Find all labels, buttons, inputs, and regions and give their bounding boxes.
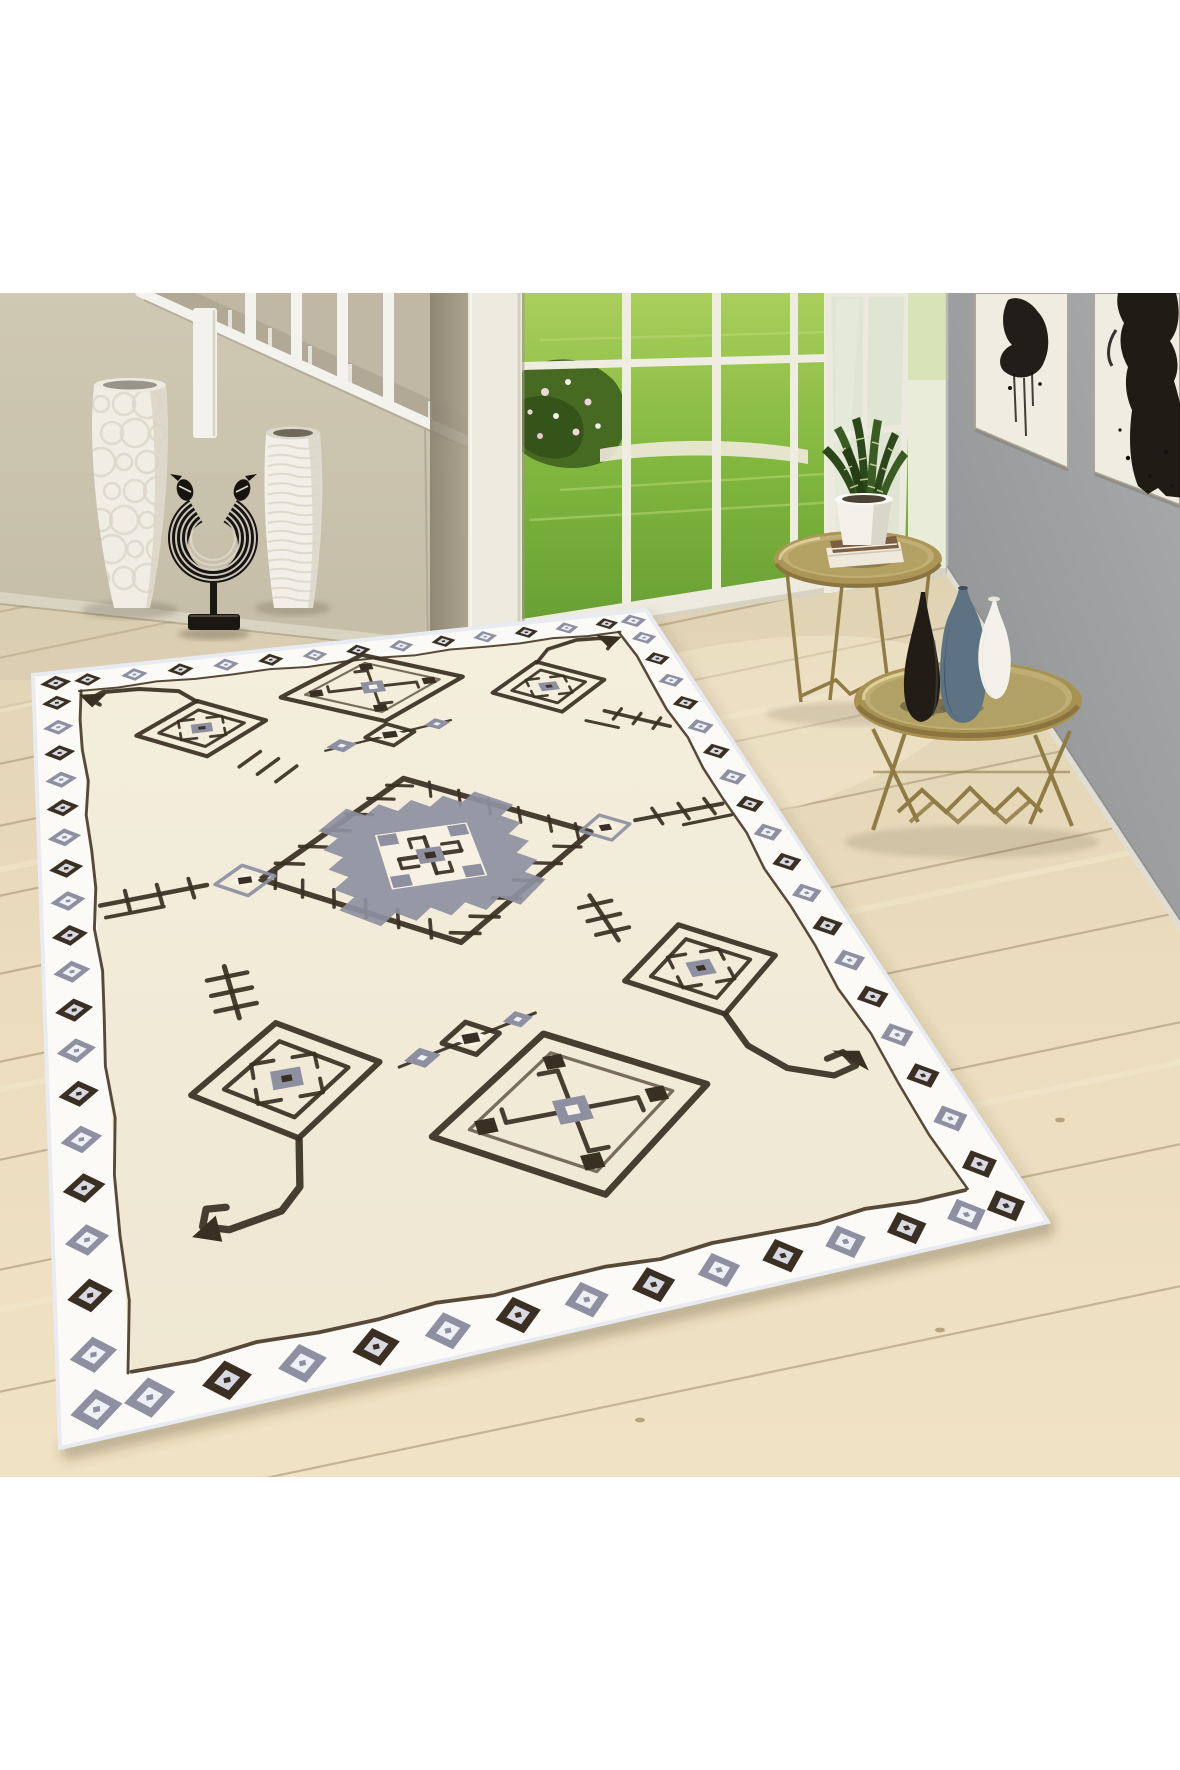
rug-line xyxy=(470,916,499,917)
ribbed-floor-vase xyxy=(264,427,322,609)
baluster xyxy=(383,293,394,404)
rug-line xyxy=(368,798,394,799)
product-photo-page xyxy=(0,0,1180,1770)
mullion xyxy=(712,293,721,589)
ribbed-vase-opening xyxy=(273,429,313,437)
plank-knot xyxy=(1055,1118,1065,1123)
mullion xyxy=(622,293,631,603)
rug-line xyxy=(534,863,562,864)
photo xyxy=(0,0,1180,1770)
rug-line xyxy=(275,872,276,889)
plank-knot xyxy=(635,1418,645,1423)
door-frame-pillar xyxy=(468,293,522,645)
artwork-ink-dress xyxy=(1094,293,1180,507)
plank-knot xyxy=(935,1328,945,1333)
rug-border-diamond-dot xyxy=(54,682,58,684)
table-shadow xyxy=(844,826,1100,858)
rug-line xyxy=(275,863,303,864)
understair-shadow xyxy=(430,293,468,643)
baluster xyxy=(291,293,302,363)
baluster xyxy=(337,293,348,383)
rug-line xyxy=(430,920,432,938)
pot-soil xyxy=(842,495,886,503)
rug-line xyxy=(450,933,479,934)
blue-vase-lip xyxy=(958,586,968,590)
rug-border-diamond-dot xyxy=(55,702,59,704)
white-vase-lip xyxy=(988,597,1000,602)
rug-line xyxy=(554,846,581,847)
baluster xyxy=(245,293,256,342)
mullion xyxy=(790,293,798,576)
pebble-vase-opening xyxy=(103,381,157,390)
sculpture-stem xyxy=(210,583,217,617)
exterior-green-haze xyxy=(908,293,947,380)
rug-line xyxy=(300,846,328,847)
rug-line xyxy=(429,782,431,796)
rug-line xyxy=(387,785,413,786)
